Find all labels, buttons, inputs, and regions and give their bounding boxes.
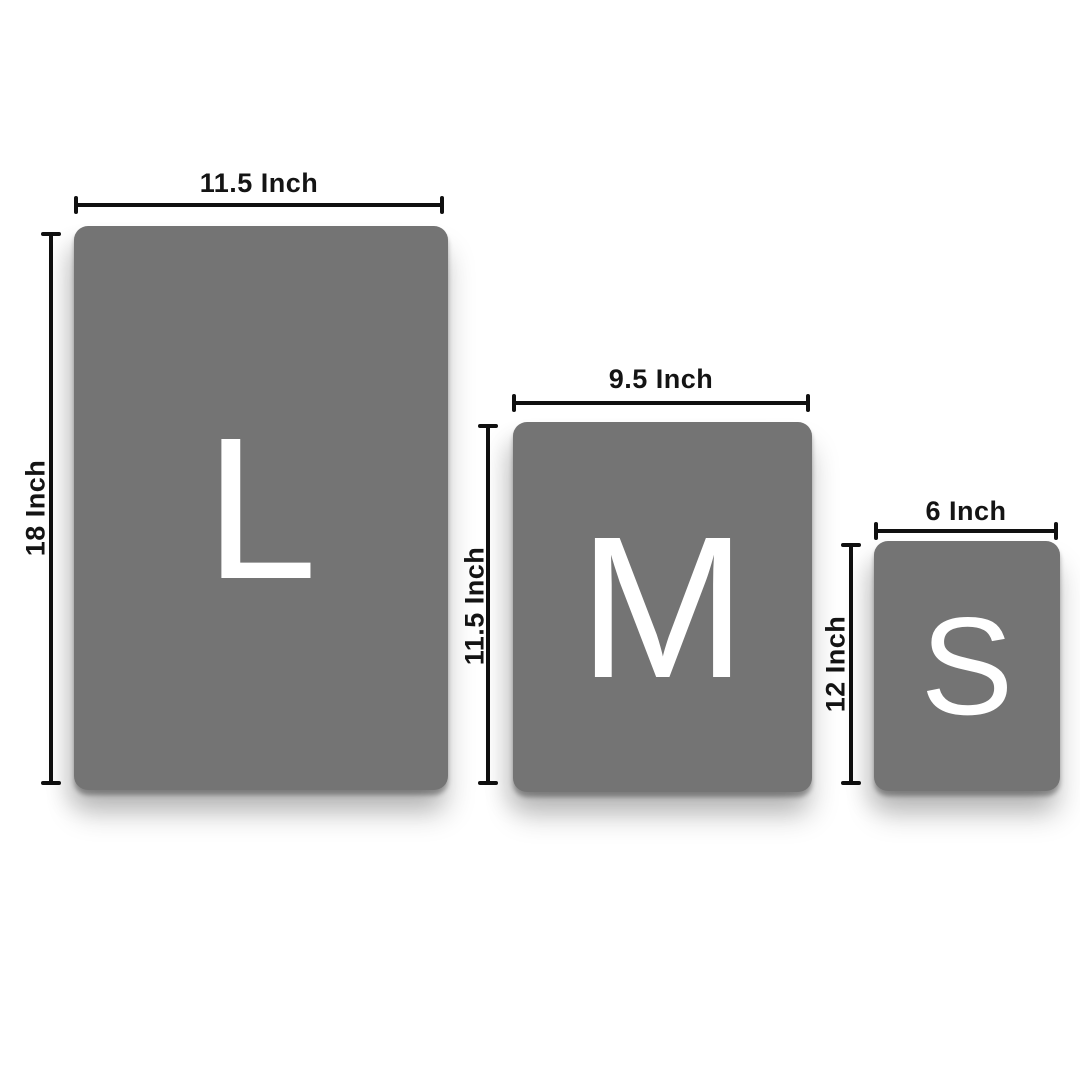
dimension-tick-icon bbox=[440, 196, 444, 214]
height-dimension-line-large bbox=[41, 232, 61, 785]
dimension-tick-icon bbox=[41, 781, 61, 785]
width-dimension-line-medium bbox=[512, 394, 810, 412]
dimension-line bbox=[49, 232, 53, 785]
size-chart-canvas: 11.5 Inch 18 Inch L 9.5 Inch 11.5 Inch M… bbox=[0, 0, 1080, 1080]
width-dimension-line-large bbox=[74, 196, 444, 214]
dimension-tick-icon bbox=[806, 394, 810, 412]
dimension-tick-icon bbox=[841, 781, 861, 785]
dimension-tick-icon bbox=[478, 781, 498, 785]
dimension-line bbox=[874, 529, 1058, 533]
size-letter-small: S bbox=[921, 597, 1014, 736]
width-label-medium: 9.5 Inch bbox=[512, 364, 810, 395]
width-dimension-line-small bbox=[874, 522, 1058, 540]
size-panel-small: S bbox=[874, 541, 1060, 791]
size-panel-medium: M bbox=[513, 422, 812, 792]
height-dimension-line-medium bbox=[478, 424, 498, 785]
dimension-line bbox=[512, 401, 810, 405]
size-letter-medium: M bbox=[578, 506, 746, 708]
width-label-large: 11.5 Inch bbox=[74, 168, 444, 199]
height-dimension-line-small bbox=[841, 543, 861, 785]
dimension-line bbox=[849, 543, 853, 785]
dimension-tick-icon bbox=[1054, 522, 1058, 540]
size-panel-large: L bbox=[74, 226, 448, 790]
size-letter-large: L bbox=[205, 407, 317, 609]
dimension-line bbox=[486, 424, 490, 785]
dimension-line bbox=[74, 203, 444, 207]
